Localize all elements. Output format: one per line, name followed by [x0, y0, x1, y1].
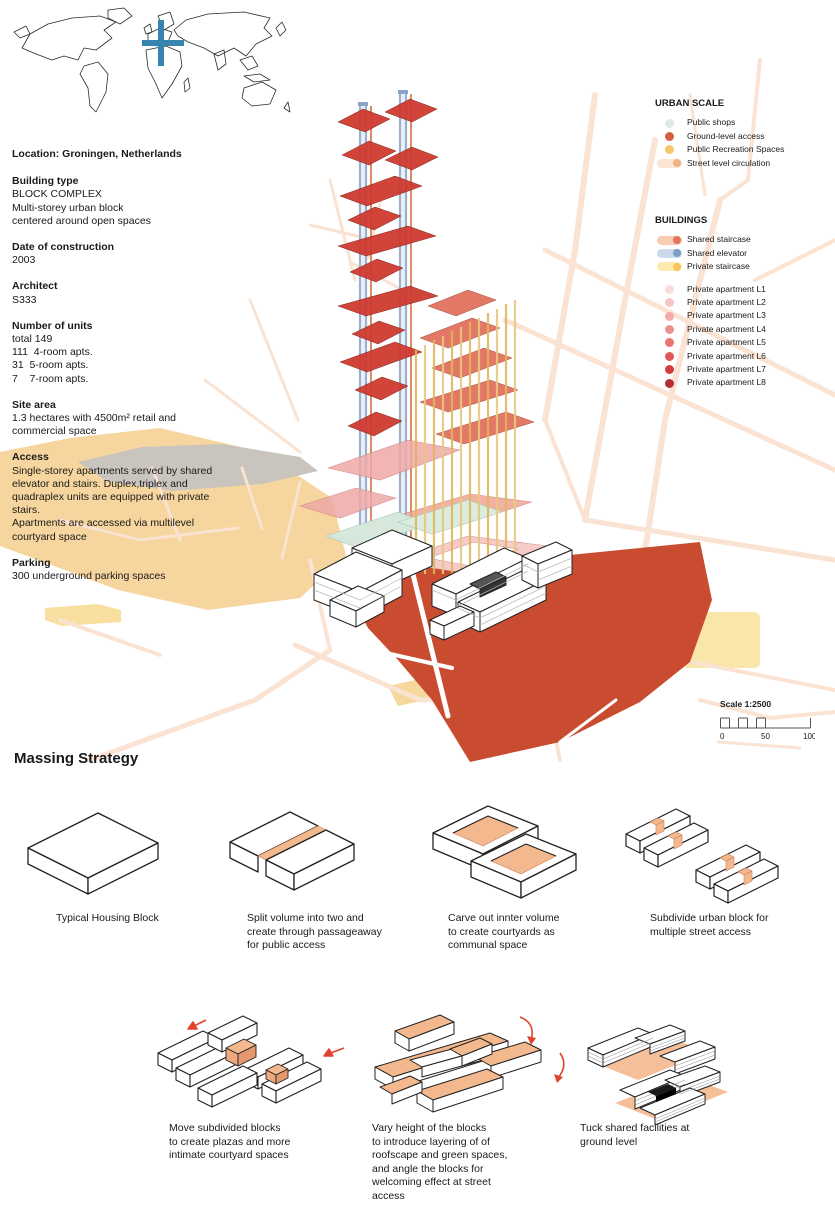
legend-item-shared-elevator: Shared elevator [655, 247, 766, 260]
swatch-ground-level-access [665, 132, 674, 141]
legend-item-public-recreation: Public Recreation Spaces [655, 143, 784, 156]
massing-step-1-diagram [18, 788, 183, 906]
info-section-building-type: Building type BLOCK COMPLEX Multi-storey… [12, 175, 250, 228]
salmon-floor-plates [420, 290, 534, 444]
legend-apartment-levels: Private apartment L1 Private apartment L… [655, 283, 766, 390]
legend-item-ground-level-access: Ground-level access [655, 130, 784, 143]
massing-caption-6: Vary height of the blocks to introduce l… [372, 1122, 552, 1203]
massing-caption-7: Tuck shared facilities at ground level [580, 1122, 760, 1149]
legend-buildings: BUILDINGS Shared staircase Shared elevat… [655, 214, 766, 390]
architecture-poster: Location: Groningen, Netherlands Buildin… [0, 0, 835, 1220]
info-section-access: Access Single-storey apartments served b… [12, 451, 250, 543]
massing-caption-5: Move subdivided blocks to create plazas … [169, 1122, 349, 1163]
legend-item-street-circulation: Street level circulation [655, 157, 784, 170]
svg-text:50: 50 [761, 732, 770, 741]
massing-caption-1: Typical Housing Block [56, 912, 236, 926]
massing-step-2-diagram [222, 790, 387, 910]
info-section-architect: Architect S333 [12, 280, 250, 306]
svg-text:100: 100 [803, 732, 815, 741]
legend-urban-scale: URBAN SCALE Public shops Ground-level ac… [655, 97, 784, 170]
swatch-public-recreation [665, 145, 674, 154]
swatch-private-staircase [657, 262, 682, 271]
info-section-parking: Parking 300 underground parking spaces [12, 557, 250, 583]
massing-strategy-title: Massing Strategy [14, 750, 138, 767]
info-section-units: Number of units total 149 111 4-room apt… [12, 320, 250, 386]
legend-item-apartment-l4: Private apartment L4 [655, 323, 766, 336]
swatch-public-shops [665, 119, 674, 128]
massing-step-6-diagram [355, 1005, 570, 1125]
legend-item-apartment-l1: Private apartment L1 [655, 283, 766, 296]
legend-item-apartment-l2: Private apartment L2 [655, 296, 766, 309]
massing-step-4-diagram [620, 786, 805, 916]
location-text: Location: Groningen, Netherlands [12, 148, 250, 161]
legend-item-apartment-l8: Private apartment L8 [655, 376, 766, 389]
massing-step-7-diagram [560, 1008, 750, 1133]
world-map [8, 4, 298, 132]
swatch-shared-elevator [657, 249, 682, 258]
massing-caption-3: Carve out innter volume to create courty… [448, 912, 628, 953]
massing-step-3-diagram [425, 788, 600, 913]
info-panel: Location: Groningen, Netherlands Buildin… [12, 148, 250, 596]
legend-item-apartment-l3: Private apartment L3 [655, 309, 766, 322]
svg-text:0: 0 [720, 732, 725, 741]
legend-item-public-shops: Public shops [655, 116, 784, 129]
legend-item-shared-staircase: Shared staircase [655, 233, 766, 246]
legend-item-apartment-l5: Private apartment L5 [655, 336, 766, 349]
scale-bar: Scale 1:2500 0 50 100 [720, 699, 815, 742]
scale-bar-graphic: 0 50 100 [720, 712, 815, 742]
info-section-date: Date of construction 2003 [12, 241, 250, 267]
swatch-shared-staircase [657, 236, 682, 245]
massing-caption-2: Split volume into two and create through… [247, 912, 427, 953]
massing-caption-4: Subdivide urban block for multiple stree… [650, 912, 830, 939]
info-section-site-area: Site area 1.3 hectares with 4500m² retai… [12, 399, 250, 439]
massing-step-5-diagram [148, 1008, 348, 1123]
legend-item-apartment-l6: Private apartment L6 [655, 350, 766, 363]
legend-item-private-staircase: Private staircase [655, 260, 766, 273]
legend-item-apartment-l7: Private apartment L7 [655, 363, 766, 376]
swatch-street-circulation [657, 159, 682, 168]
